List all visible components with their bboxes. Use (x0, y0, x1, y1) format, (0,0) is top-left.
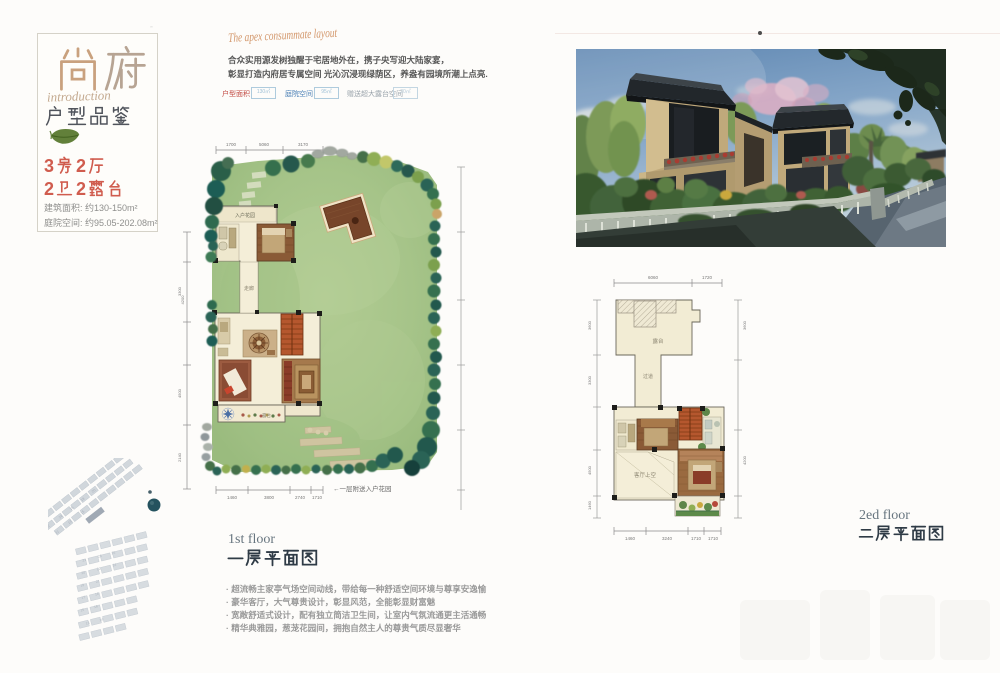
svg-text:3300: 3300 (587, 375, 592, 385)
svg-text:客厅上空: 客厅上空 (634, 471, 657, 479)
svg-text:4500: 4500 (177, 388, 182, 398)
svg-text:露台: 露台 (652, 337, 664, 345)
svg-text:13: 13 (67, 519, 73, 525)
svg-text:3: 3 (44, 156, 54, 175)
svg-text:3240: 3240 (662, 536, 673, 541)
svg-text:入户花园: 入户花园 (235, 212, 255, 219)
svg-text:1460: 1460 (625, 536, 636, 541)
svg-text:1710: 1710 (312, 495, 323, 500)
svg-text:6060: 6060 (648, 275, 659, 280)
svg-text:1710: 1710 (708, 536, 719, 541)
svg-text:露台: 露台 (262, 412, 271, 419)
svg-text:走廊: 走廊 (244, 285, 254, 292)
svg-text:2: 2 (44, 179, 54, 198)
svg-text:1720: 1720 (702, 275, 713, 280)
svg-text:3800: 3800 (264, 495, 275, 500)
svg-text:1700: 1700 (226, 142, 237, 147)
svg-text:过道: 过道 (643, 373, 653, 380)
svg-text:4500: 4500 (587, 465, 592, 475)
svg-text:3170: 3170 (298, 142, 309, 147)
svg-text:2: 2 (76, 179, 86, 198)
svg-text:3300: 3300 (177, 286, 182, 296)
svg-text:1710: 1710 (691, 536, 702, 541)
svg-text:14: 14 (58, 514, 64, 520)
svg-text:5060: 5060 (259, 142, 270, 147)
svg-text:1460: 1460 (587, 500, 592, 510)
svg-text:3600: 3600 (587, 320, 592, 330)
svg-text:←一层附送入户花园: ←一层附送入户花园 (333, 484, 392, 493)
svg-text:2: 2 (76, 156, 86, 175)
svg-text:3600: 3600 (742, 320, 747, 330)
svg-text:1460: 1460 (227, 495, 238, 500)
svg-text:2740: 2740 (295, 495, 306, 500)
svg-text:22: 22 (96, 567, 101, 572)
svg-text:4200: 4200 (742, 455, 747, 465)
